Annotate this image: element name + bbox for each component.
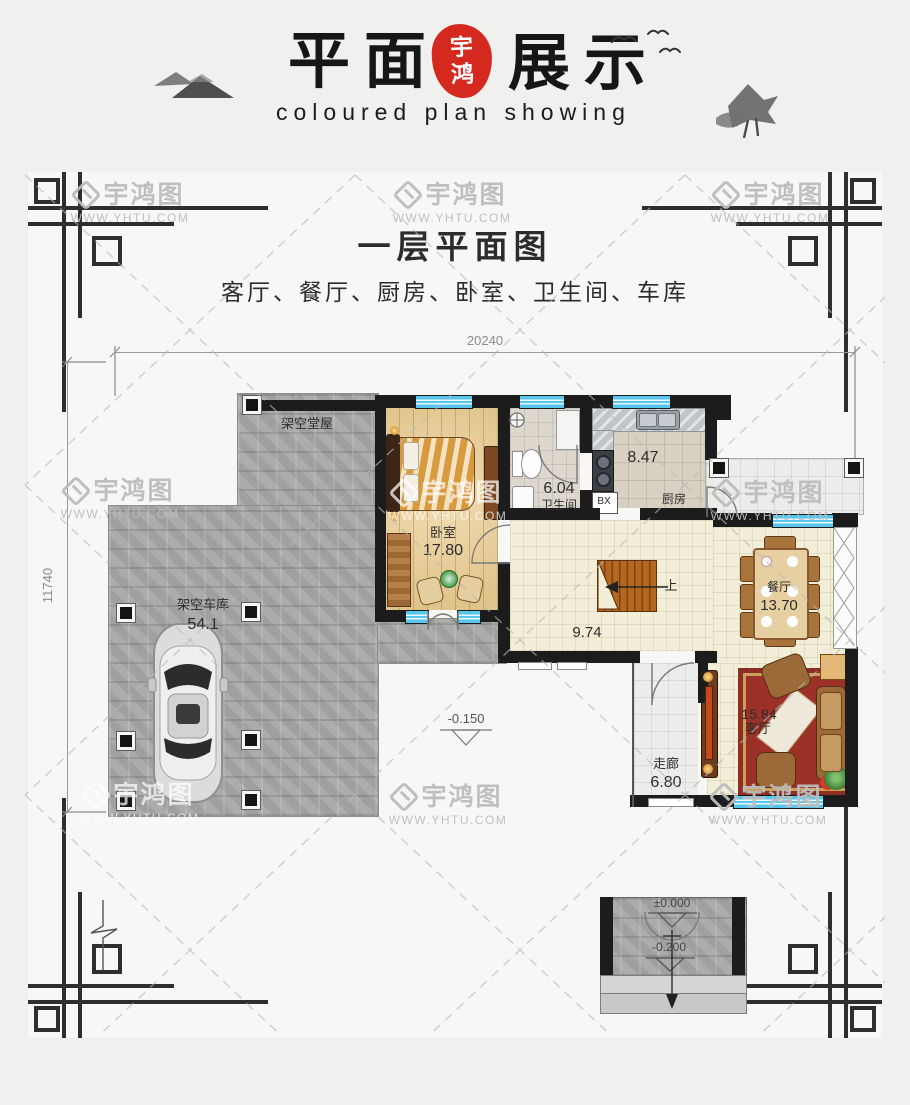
garage-label: 架空车库 [158,598,248,613]
header: 平面 宇 鸿 展示 coloured plan showing [0,0,910,150]
window [415,395,473,409]
window [772,514,834,528]
seal-char-bottom: 鸿 [451,61,475,87]
bed [387,437,475,511]
wall [375,610,405,622]
wall [832,513,858,527]
column [117,604,135,622]
window [519,395,565,409]
wall [375,395,386,622]
sofa-cushion [820,734,842,772]
wall [698,795,733,807]
column [845,459,863,477]
wall [243,400,377,411]
window [612,395,671,409]
window [405,610,429,624]
dining-plates [761,556,772,567]
column [242,731,260,749]
bath-shelf [556,410,580,450]
wall [498,395,510,520]
toilet-bowl [521,449,542,479]
dimension-left-value: 11740 [40,568,55,603]
window [457,610,481,624]
hall-area: 9.74 [562,624,612,641]
window [733,795,824,809]
wall [713,513,772,527]
corridor-label: 走廊 [644,757,688,772]
tv-panel [705,686,713,760]
plan-title: 一层平面图 [255,228,655,266]
terrace-floor [705,458,864,515]
frame-corner-bottom-left [24,792,274,1042]
wall [498,562,510,663]
porch-level-zero: ±0.000 [640,897,704,911]
wall [695,651,717,663]
kitchen-sink-basin [639,413,657,427]
bathroom-label: 卫生间 [531,499,587,513]
pine-tree-icon [698,66,783,138]
brand-title-left: 平面 [288,30,440,92]
cabinet-lamp [703,764,713,774]
living-area: 15.84 [732,706,786,722]
column [117,732,135,750]
window-sill [518,662,552,670]
dining-area: 13.70 [754,597,804,614]
porch-wall [732,897,745,975]
column [243,396,261,414]
dimension-line-top [115,352,855,353]
wall [705,395,717,460]
seal-char-top: 宇 [450,35,474,61]
level-marker: -0.150 [436,712,496,727]
garage-area: 54.1 [158,616,248,634]
sofa-cushion [820,692,842,730]
paving-strip [377,618,507,664]
fridge-label: BX [592,496,616,508]
window-sill [557,662,587,670]
bed-pillow [403,442,419,470]
corridor-edge-line [632,663,634,807]
column [710,459,728,477]
cabinet-lamp [703,672,713,682]
bed-headboard [386,434,400,512]
bay-window-panel [833,527,857,649]
stilt-hall-label: 架空堂屋 [262,417,352,432]
bedside-lamp [390,512,399,521]
column [117,792,135,810]
stove-burner [596,472,611,487]
window-sill [648,798,694,807]
dining-label: 餐厅 [757,581,801,595]
stairs [597,560,657,612]
bedroom-label: 卧室 [408,526,478,541]
birds-icon [608,26,688,64]
wall [640,508,717,520]
bedroom-area: 17.80 [405,542,481,560]
wall [580,395,592,453]
bathroom-area: 6.04 [534,480,584,498]
column [242,791,260,809]
bed-pillow [403,474,419,502]
car-top-view [146,620,230,806]
dimension-line-left [67,362,68,812]
kitchen-sink-basin [658,413,676,427]
porch-step [600,993,747,1014]
dimension-top-value: 20240 [455,334,515,349]
coloured-plan-page: { "header": { "brand_cn_left": "平面", "br… [0,0,910,1105]
side-table [820,654,846,680]
stairs-up-label: 上 [662,579,680,594]
header-tagline: coloured plan showing [276,99,631,126]
kitchen-area: 8.47 [618,449,668,467]
porch-step [600,975,747,995]
mountains-icon [148,52,243,104]
kitchen-label: 厨房 [652,493,696,507]
wall [822,795,858,807]
plan-subtitle: 客厅、餐厅、厨房、卧室、卫生间、车库 [150,280,760,306]
tea-table [440,570,458,588]
stove-burner [596,455,611,470]
armchair [756,752,796,788]
porch-level-minus: -0.200 [637,941,701,955]
living-label: 客厅 [736,722,780,737]
bedside-lamp [390,426,399,435]
porch-wall [600,897,613,975]
corridor-area: 6.80 [642,774,690,792]
wall [845,647,858,807]
dresser [484,446,499,520]
brand-seal: 宇 鸿 [431,23,494,99]
